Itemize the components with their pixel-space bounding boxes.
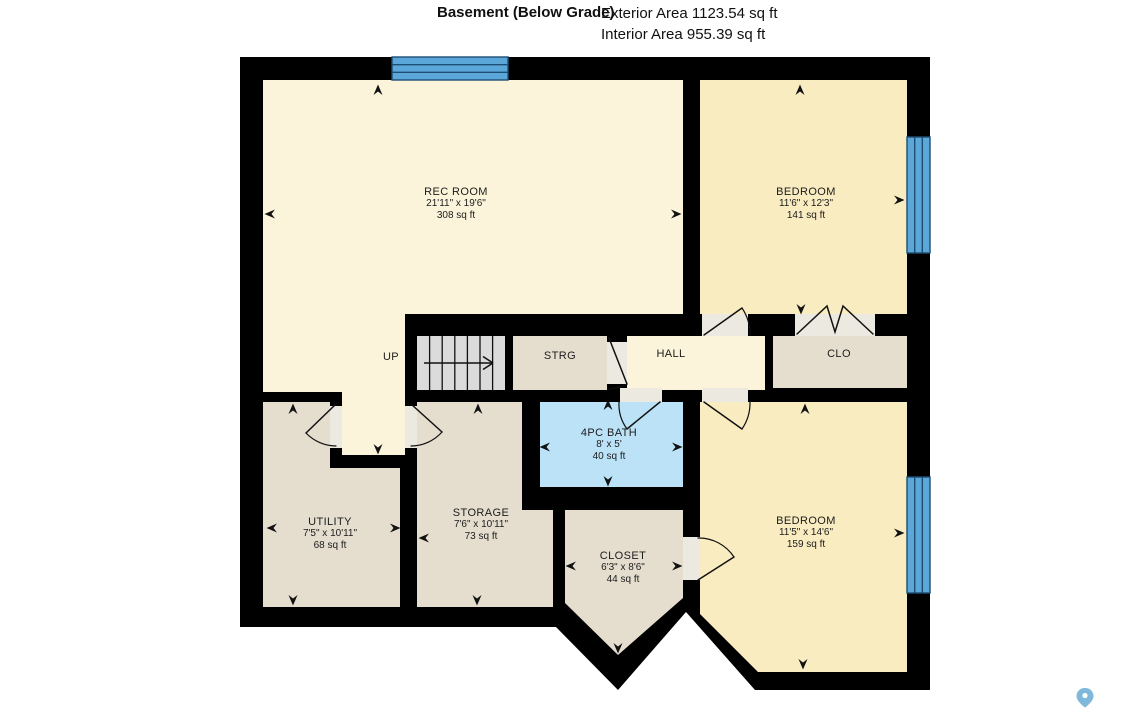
bath-area: 40 sq ft: [581, 451, 637, 463]
strg-name: STRG: [544, 350, 576, 362]
utility-dims: 7'5" x 10'11": [303, 528, 357, 540]
window-right-top: [907, 137, 930, 253]
storage-name: STORAGE: [453, 507, 509, 519]
storage-dims: 7'6" x 10'11": [453, 519, 509, 531]
bedroom-bottom-label: BEDROOM 11'5" x 14'6" 159 sq ft: [776, 515, 836, 551]
bedroom-bottom-dims: 11'5" x 14'6": [776, 527, 836, 539]
stairs-up-label: UP: [383, 351, 399, 363]
clo-name: CLO: [827, 348, 851, 360]
hall-label: HALL: [656, 348, 685, 360]
rec-room-name: REC ROOM: [424, 186, 488, 198]
bath-label: 4PC BATH 8' x 5' 40 sq ft: [581, 427, 637, 463]
door-strg-hall: [607, 336, 627, 390]
bedroom-bottom-area: 159 sq ft: [776, 539, 836, 551]
storage-area: 73 sq ft: [453, 531, 509, 543]
rec-room-label: REC ROOM 21'11" x 19'6" 308 sq ft: [424, 186, 488, 222]
closet-name: CLOSET: [600, 550, 646, 562]
floor-plan-page: Basement (Below Grade) Exterior Area 112…: [0, 0, 1143, 720]
rec-room-dims: 21'11" x 19'6": [424, 198, 488, 210]
strg-label: STRG: [544, 350, 576, 362]
closet-dims: 6'3" x 8'6": [600, 562, 646, 574]
bath-dims: 8' x 5': [581, 439, 637, 451]
utility-name: UTILITY: [303, 516, 357, 528]
clo-label: CLO: [827, 348, 851, 360]
bedroom-top-dims: 11'6" x 12'3": [776, 198, 836, 210]
room-strg: [513, 336, 607, 390]
window-top: [392, 57, 508, 80]
room-clo: [773, 336, 907, 388]
room-hall: [627, 336, 765, 390]
closet-area: 44 sq ft: [600, 574, 646, 586]
utility-area: 68 sq ft: [303, 540, 357, 552]
bedroom-top-label: BEDROOM 11'6" x 12'3" 141 sq ft: [776, 186, 836, 222]
bath-name: 4PC BATH: [581, 427, 637, 439]
stairs: [417, 336, 505, 390]
hall-name: HALL: [656, 348, 685, 360]
bedroom-top-name: BEDROOM: [776, 186, 836, 198]
stairs-up-text: UP: [383, 351, 399, 363]
window-right-bottom: [907, 477, 930, 593]
rec-room-area: 308 sq ft: [424, 210, 488, 222]
location-pin-icon: [1077, 688, 1094, 708]
bedroom-bottom-name: BEDROOM: [776, 515, 836, 527]
storage-label: STORAGE 7'6" x 10'11" 73 sq ft: [453, 507, 509, 543]
utility-label: UTILITY 7'5" x 10'11" 68 sq ft: [303, 516, 357, 552]
closet-label: CLOSET 6'3" x 8'6" 44 sq ft: [600, 550, 646, 586]
bedroom-top-area: 141 sq ft: [776, 210, 836, 222]
